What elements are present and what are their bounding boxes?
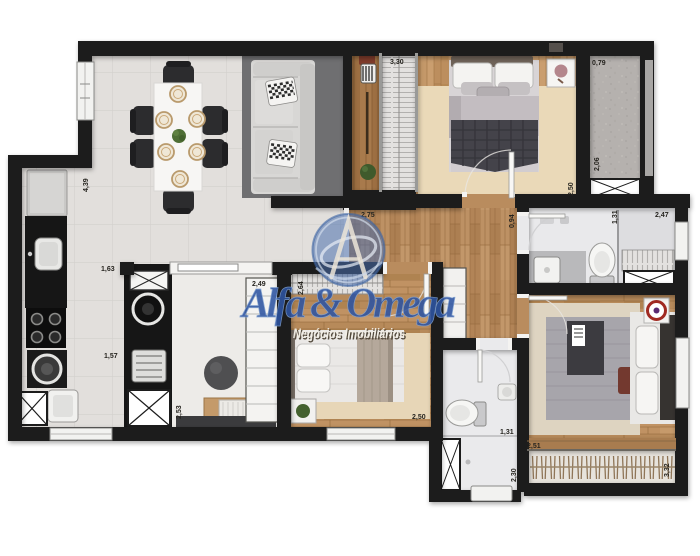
svg-text:0,94: 0,94	[509, 214, 516, 228]
svg-text:2,50: 2,50	[412, 414, 426, 421]
svg-text:Negócios Imobiliários: Negócios Imobiliários	[293, 326, 405, 341]
svg-text:1,31: 1,31	[612, 210, 619, 224]
svg-text:2,30: 2,30	[511, 468, 518, 482]
svg-text:3,30: 3,30	[390, 59, 404, 66]
svg-text:1,63: 1,63	[101, 266, 115, 273]
svg-text:3,32: 3,32	[664, 463, 671, 477]
svg-text:4,39: 4,39	[83, 178, 90, 192]
svg-text:Alfa & Omega: Alfa & Omega	[239, 281, 456, 327]
svg-text:1,57: 1,57	[104, 353, 118, 360]
svg-text:2,06: 2,06	[594, 157, 601, 171]
svg-text:2,51: 2,51	[527, 443, 541, 450]
svg-text:2,47: 2,47	[655, 212, 669, 219]
svg-text:2,50: 2,50	[568, 182, 575, 196]
svg-text:0,79: 0,79	[592, 60, 606, 67]
svg-text:1,31: 1,31	[500, 429, 514, 436]
svg-text:2,53: 2,53	[176, 405, 183, 419]
